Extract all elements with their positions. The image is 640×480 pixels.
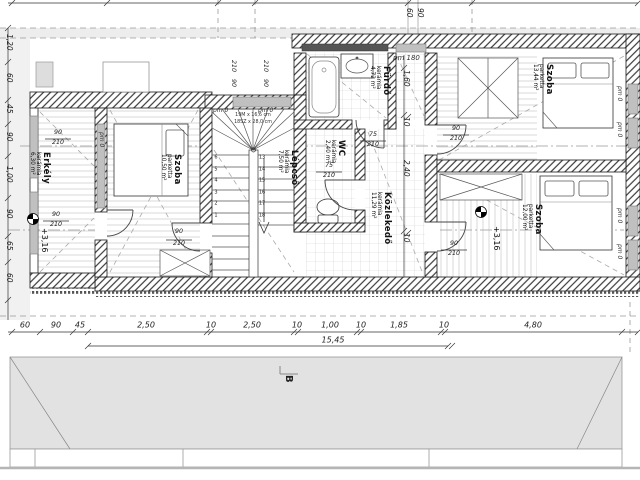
bathtub [309, 57, 339, 117]
dim-label: 10 [402, 233, 410, 243]
door-width: 90 [450, 241, 458, 248]
shafts [36, 62, 149, 92]
door-height: 210 [448, 251, 460, 258]
room-name: Szoba [544, 64, 553, 95]
room-area: 7,50 m² [276, 150, 282, 186]
stair-number: 17 [259, 201, 265, 206]
room-label-kozlekedo: Közlekedő kerámia 11,29 m² [369, 192, 391, 245]
dim-label: 90 [51, 322, 61, 331]
window-width: 90 [54, 130, 62, 137]
room-area: 2,40 m² [323, 140, 329, 163]
room-label-szoba-top-right: Szoba parketta 13,44 m² [531, 64, 553, 95]
room-material: parketta [538, 64, 544, 95]
stair-number: 15 [259, 178, 265, 183]
room-label-erkely: Erkély kerámia 6,30 m² [28, 152, 50, 184]
sill-label-pm180: pm 180 [393, 55, 420, 63]
room-label-wc: WC kerámia 2,40 m² [323, 140, 345, 163]
room-label-lepcso: Lépcső kerámia 7,50 m² [276, 150, 298, 186]
sill-label-pm0: pm 0 [616, 86, 622, 101]
dim-label: 1,60 [402, 70, 410, 87]
door-height: 210 [450, 136, 462, 143]
section-marker-label: B [282, 375, 293, 383]
dim-label: 45 [75, 322, 85, 331]
window-width: 90 [261, 79, 268, 87]
sill-label-pm0: pm 0 [258, 108, 273, 114]
room-area: 4,72 m² [368, 66, 374, 96]
room-label-szoba-bottom-right: Szoba parketta 12,00 m² [520, 204, 542, 235]
stair-number: 13 [259, 155, 265, 160]
level-label-bedroom: +3,16 [491, 226, 500, 251]
room-area: 13,44 m² [531, 64, 537, 95]
room-name: Szoba [172, 154, 181, 185]
dim-label: 60 [405, 8, 413, 18]
room-material: kerámia [35, 152, 41, 184]
dim-label: 10 [292, 322, 302, 331]
door-width: 75 [325, 163, 333, 170]
sill-label-pm0: pm 0 [98, 132, 104, 147]
door-height: 210 [367, 142, 379, 149]
room-area: 11,29 m² [369, 192, 375, 245]
dim-label: 2,50 [243, 322, 261, 331]
bed-bottom-right-room [540, 176, 612, 250]
door-height: 210 [173, 241, 185, 248]
stair-spec-treads: 18SZ x 28,0 cm [234, 120, 272, 125]
room-name: Lépcső [289, 150, 298, 186]
sill-label-pm0: pm 0 [616, 208, 622, 223]
room-label-szoba-left: Szoba parketta 10,50 m² [159, 154, 181, 185]
window-width: 90 [229, 79, 236, 87]
dim-label: 60 [5, 73, 13, 83]
window-width: 90 [52, 212, 60, 219]
sill-label-pm0: pm 0 [616, 244, 622, 259]
room-area: 6,30 m² [28, 152, 34, 184]
roof-below [0, 357, 640, 468]
room-name: Közlekedő [382, 192, 391, 245]
door-width: 75 [369, 132, 377, 139]
dim-total-label: 15,45 [322, 337, 345, 346]
window-height: 210 [52, 140, 64, 147]
dim-label: 1,20 [5, 34, 13, 51]
room-material: parketta [166, 154, 172, 185]
stair-number: 3 [214, 190, 217, 195]
dim-label: 60 [5, 273, 13, 283]
dim-label: 2,50 [137, 322, 155, 331]
room-name: Fürdő [381, 66, 390, 96]
sill-label-pm0: pm 0 [616, 122, 622, 137]
dim-label: 1,00 [321, 322, 339, 331]
door-width: 90 [452, 126, 460, 133]
dim-label: 1,00 [5, 166, 13, 183]
dim-label: 65 [5, 241, 13, 251]
window-height: 210 [50, 222, 62, 229]
stair-number: 5 [214, 167, 217, 172]
dim-label: 10 [356, 322, 366, 331]
stair-number: 6 [214, 155, 217, 160]
dim-label: 1,85 [390, 322, 408, 331]
dim-label: 10 [402, 117, 410, 127]
sill-label-pm0: pm 0 [213, 108, 228, 114]
dim-label: 90 [5, 209, 13, 219]
room-name: Szoba [533, 204, 542, 235]
dim-label: 45 [5, 104, 13, 114]
window-height: 210 [261, 60, 268, 72]
dim-label: 10 [206, 322, 216, 331]
stair-number: 1 [214, 213, 217, 218]
room-area: 10,50 m² [159, 154, 165, 185]
room-material: kerámia [376, 192, 382, 245]
level-label-balcony: +3,16 [39, 228, 48, 253]
dim-label: 90 [416, 8, 424, 18]
room-area: 12,00 m² [520, 204, 526, 235]
dim-label: 90 [5, 132, 13, 142]
room-name: Erkély [41, 152, 50, 184]
level-marker-balcony [28, 214, 39, 225]
stair-number: 14 [259, 167, 265, 172]
room-material: parketta [527, 204, 533, 235]
room-material: kerámia [330, 140, 336, 163]
room-material: kerámia [283, 150, 289, 186]
floor-plan-canvas: Erkély kerámia 6,30 m² Szoba parketta 10… [0, 0, 640, 480]
dim-label: 60 [20, 322, 30, 331]
stair-number: 16 [259, 190, 265, 195]
dim-label: 2,40 [402, 160, 410, 177]
door-width: 90 [175, 229, 183, 236]
dim-label: 10 [439, 322, 449, 331]
stair-number: 4 [214, 178, 217, 183]
stair-number: 18 [259, 213, 265, 218]
window-height: 210 [229, 60, 236, 72]
staircase [212, 109, 294, 277]
dim-label: 4,80 [524, 322, 542, 331]
level-marker-bedroom [476, 207, 487, 218]
room-name: WC [336, 140, 345, 163]
door-height: 210 [323, 173, 335, 180]
room-label-furdo: Fürdő kerámia 4,72 m² [368, 66, 390, 96]
stair-number: 2 [214, 201, 217, 206]
room-material: kerámia [375, 66, 381, 96]
